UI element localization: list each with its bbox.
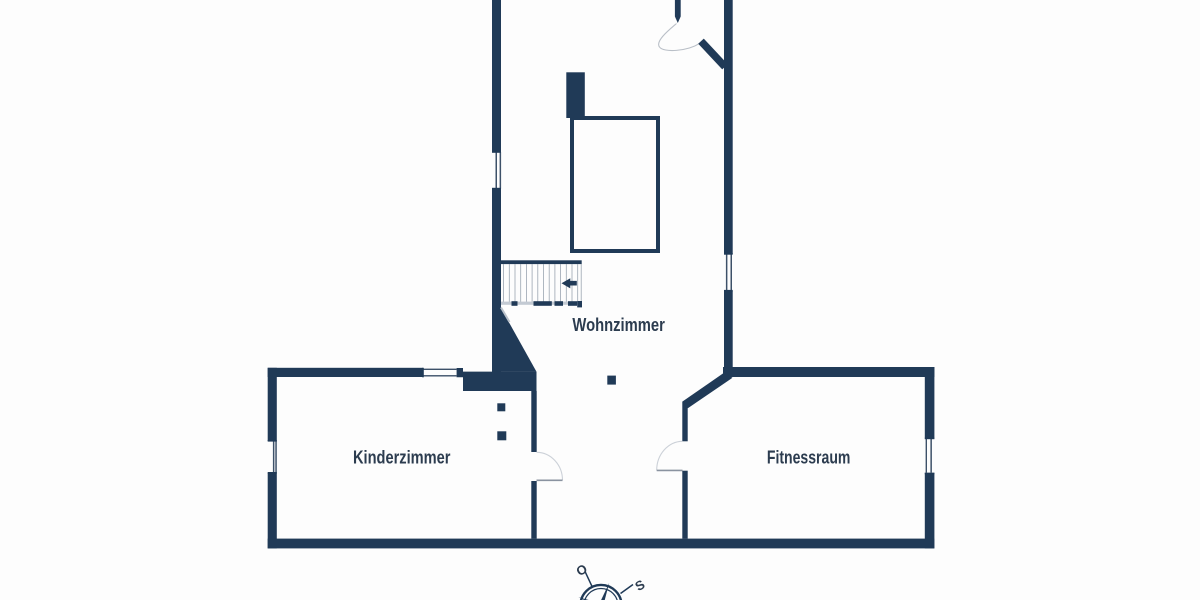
svg-text:Wohnzimmer: Wohnzimmer — [572, 315, 665, 335]
svg-text:Kinderzimmer: Kinderzimmer — [353, 447, 451, 467]
svg-text:Fitnessraum: Fitnessraum — [767, 447, 851, 467]
